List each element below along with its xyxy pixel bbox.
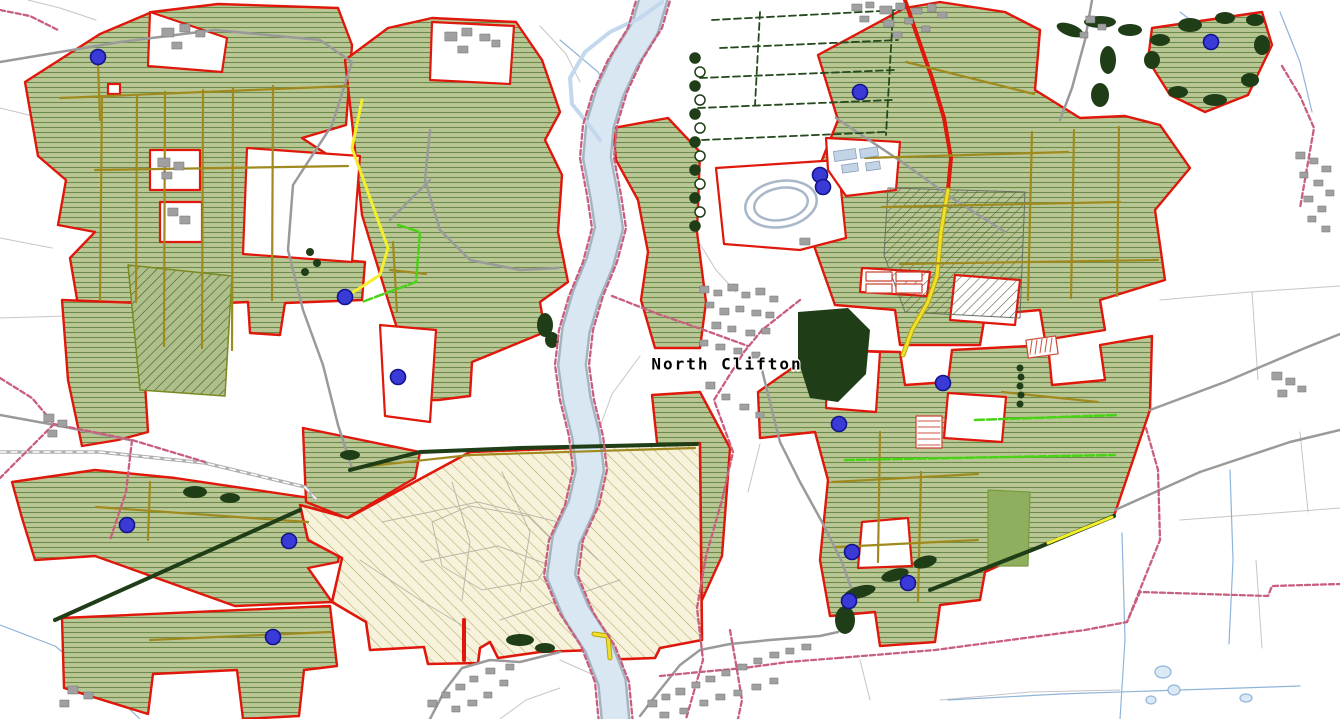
site-marker[interactable] <box>120 518 135 533</box>
site-marker[interactable] <box>91 50 106 65</box>
site-marker[interactable] <box>266 630 281 645</box>
site-marker[interactable] <box>853 85 868 100</box>
sw-strip <box>62 606 337 719</box>
ponds <box>1146 666 1252 704</box>
map-canvas[interactable]: North Clifton <box>0 0 1340 719</box>
white-center <box>380 325 436 422</box>
site-marker[interactable] <box>901 576 916 591</box>
white-e <box>944 393 1006 442</box>
site-marker[interactable] <box>832 417 847 432</box>
site-marker[interactable] <box>1204 35 1219 50</box>
site-marker[interactable] <box>391 370 406 385</box>
site-marker[interactable] <box>816 180 831 195</box>
green-diag-parcel <box>128 265 232 396</box>
site-marker[interactable] <box>282 534 297 549</box>
place-label-north-clifton: North Clifton <box>651 355 802 374</box>
diag-green <box>128 265 232 396</box>
tiny-red-mark <box>108 84 120 94</box>
site-marker[interactable] <box>842 594 857 609</box>
site-marker[interactable] <box>845 545 860 560</box>
site-marker[interactable] <box>936 376 951 391</box>
site-marker[interactable] <box>338 290 353 305</box>
